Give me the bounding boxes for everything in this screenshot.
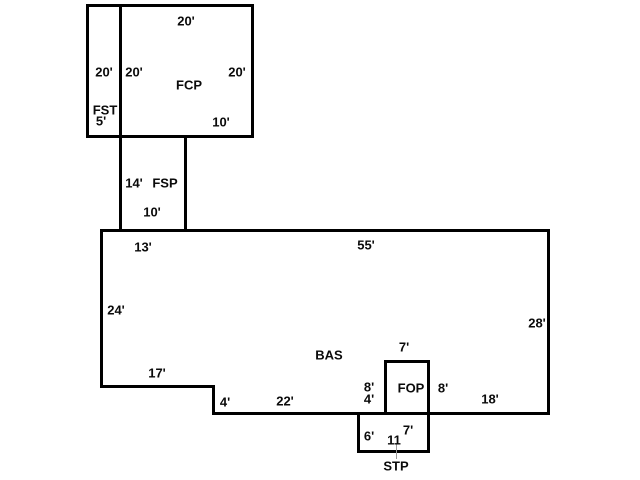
fcp-dim-top: 20': [177, 15, 195, 28]
bas-dim-bottom-right: 18': [481, 393, 499, 406]
bas-outline-notch-bottom: [100, 385, 215, 388]
fst-divider-line: [119, 4, 122, 138]
bas-dim-top: 55': [357, 239, 375, 252]
bas-dim-step: 4': [220, 396, 230, 409]
fcp-dim-inner-left: 20': [125, 66, 143, 79]
fsp-dim-width: 14': [125, 177, 143, 190]
fcp-area-label: FCP: [176, 79, 202, 92]
bas-outline-left: [100, 229, 103, 388]
fop-area-label: FOP: [398, 382, 425, 395]
bas-outline-step-vertical: [212, 385, 215, 415]
bas-dim-right: 28': [528, 317, 546, 330]
stp-dim-inner: 7': [403, 424, 413, 437]
fcp-dim-bottom: 10': [212, 116, 230, 129]
bas-dim-bottom-mid: 22': [276, 395, 294, 408]
stp-area-label: STP: [383, 460, 408, 473]
bas-dim-left: 24': [107, 304, 125, 317]
fst-dim-side: 20': [95, 66, 113, 79]
fst-dim-bottom: 5': [96, 115, 106, 128]
stp-dim-bottom: 11: [387, 434, 401, 447]
bas-area-label: BAS: [315, 349, 342, 362]
bas-outline-right: [547, 229, 550, 415]
fop-dim-right: 8': [438, 382, 448, 395]
stp-dim-left: 6': [364, 430, 374, 443]
floorplan-sketch: 20' 20' 20' 20' FCP FST 5' 10' 14' FSP 1…: [0, 0, 640, 480]
fsp-area-label: FSP: [152, 177, 177, 190]
fcp-dim-right: 20': [228, 66, 246, 79]
fop-dim-left-lower: 4': [364, 393, 374, 406]
bas-outline-top: [100, 229, 550, 232]
fsp-dim-bottom: 10': [143, 206, 161, 219]
bas-dim-top-left: 13': [134, 241, 152, 254]
fop-dim-top: 7': [399, 341, 409, 354]
bas-dim-notch-bottom: 17': [148, 367, 166, 380]
